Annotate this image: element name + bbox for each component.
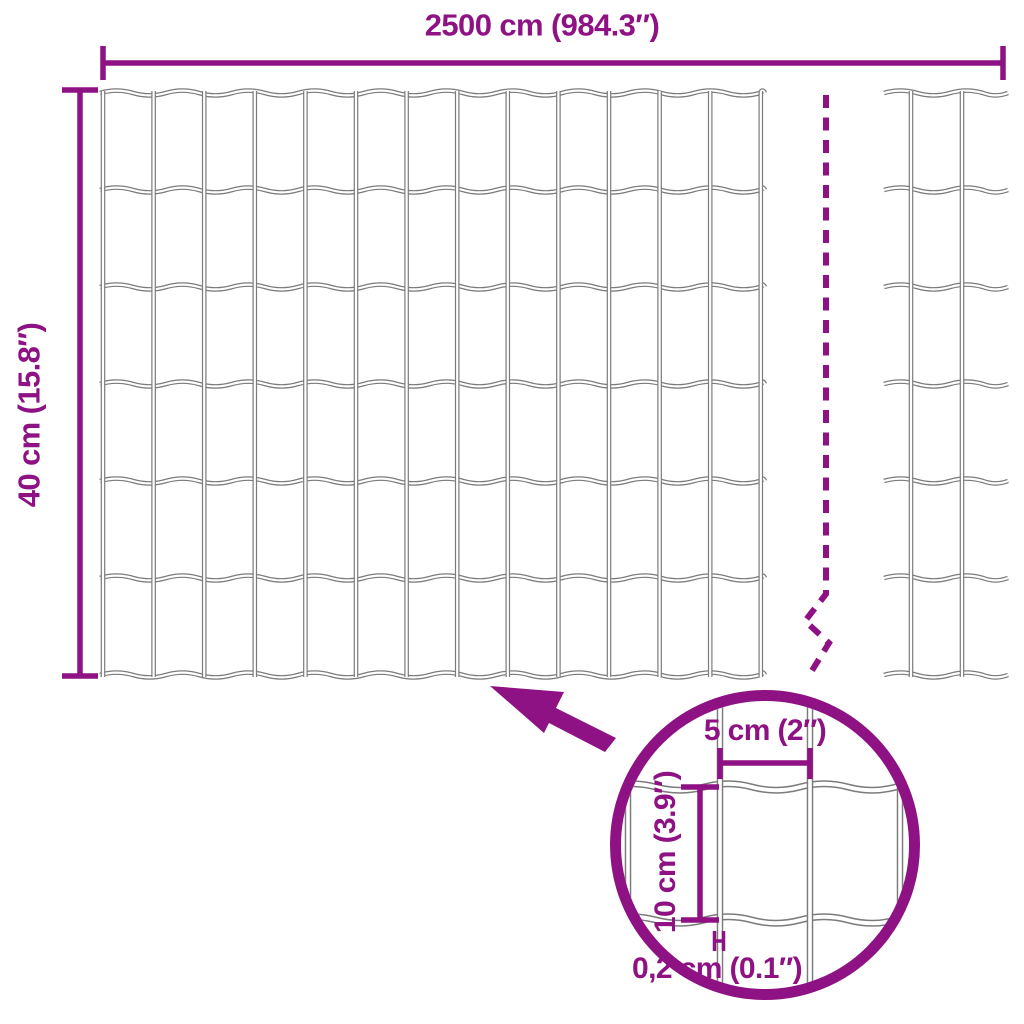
overall-height-label: 40 cm (15.8″) (14, 323, 45, 508)
cell-width-label: 5 cm (2″) (704, 716, 826, 746)
overall-width-label: 2500 cm (984.3″) (425, 10, 659, 41)
width-dimension-line (103, 46, 1003, 80)
fence-mesh-right-section (884, 91, 1008, 678)
dashed-break-line (805, 95, 829, 677)
diagram-canvas (0, 0, 1024, 1024)
wire-thickness-label: 0,2 cm (0.1″) (632, 954, 802, 984)
product-dimension-diagram: 2500 cm (984.3″) 40 cm (15.8″) 5 cm (2″)… (0, 0, 1024, 1024)
arrow-up-left-icon (490, 686, 616, 752)
cell-height-label: 10 cm (3.9″) (651, 771, 681, 933)
height-dimension-line (62, 90, 98, 676)
fence-mesh-main (100, 91, 765, 678)
